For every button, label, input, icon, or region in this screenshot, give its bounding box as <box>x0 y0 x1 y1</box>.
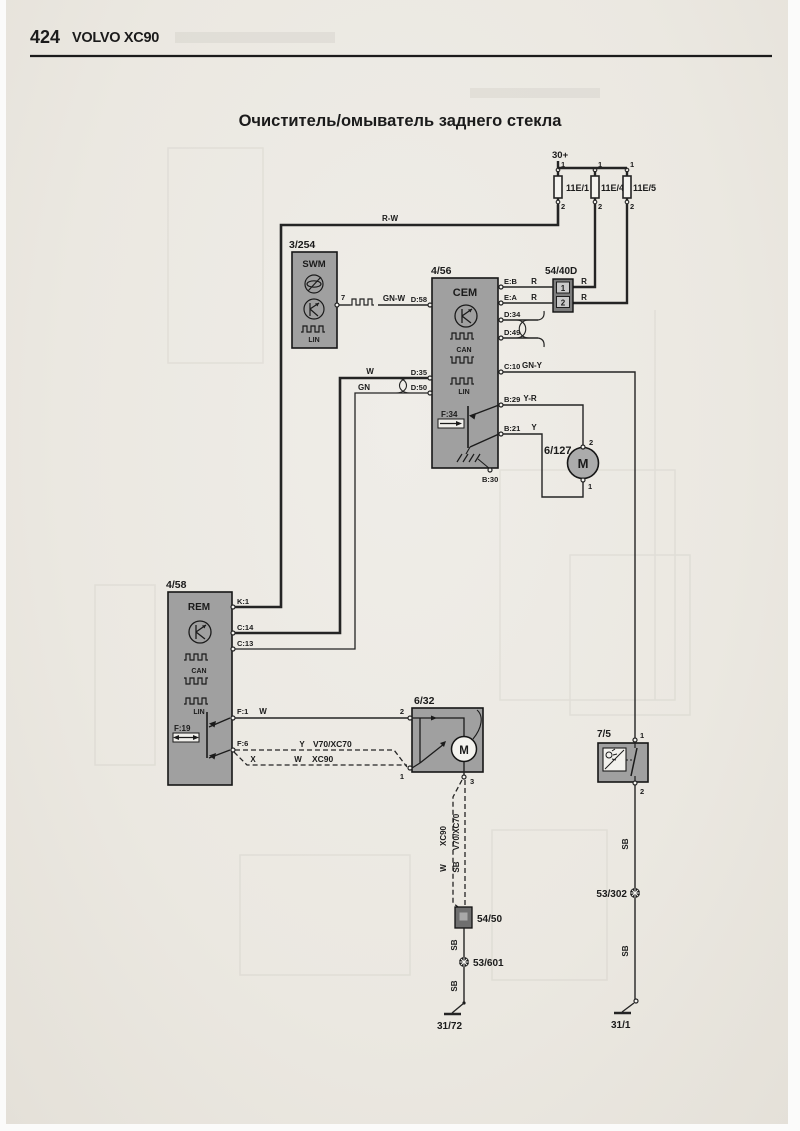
fuse-pin-label: 2 <box>630 202 634 211</box>
wire-gnw-label: GN-W <box>383 294 406 303</box>
module-rem: 4/58 REM CAN LIN F:19 <box>166 579 232 785</box>
pin-label-7: 7 <box>341 293 345 302</box>
connector-cell-label: 2 <box>561 299 566 308</box>
relay-coil-icon <box>438 419 464 428</box>
pin-label-eb: E:B <box>504 277 518 286</box>
pin-label-d50: D:50 <box>411 383 427 392</box>
page-number: 424 <box>30 27 60 47</box>
fuse-name: 11E/5 <box>633 183 656 193</box>
wire-gn-can <box>234 393 428 649</box>
ground-31-1: 31/1 <box>611 999 638 1031</box>
wire-y-label: Y <box>299 740 305 749</box>
wire-r-label: R <box>581 277 587 286</box>
wire-w-label: W <box>259 707 267 716</box>
module-cem: 4/56 CEM CAN LIN F:34 <box>431 265 499 469</box>
pin-label-f1: F:1 <box>237 707 248 716</box>
wire-y-label: Y <box>531 423 537 432</box>
ground-id: 31/1 <box>611 1020 631 1031</box>
motor-letter: M <box>578 456 589 471</box>
connector-id: 54/40D <box>545 266 577 277</box>
variant-label-v70: V70/XC70 <box>313 739 352 749</box>
fuse-name: 11E/1 <box>566 183 589 193</box>
pin-label-d35: D:35 <box>411 368 427 377</box>
connector-54-40d: 54/40D 1 2 <box>545 266 577 312</box>
module-name: CEM <box>453 287 477 299</box>
pin-label-c14: C:14 <box>237 623 254 632</box>
wire-r-fuse5 <box>573 205 627 303</box>
splice-id: 53/302 <box>596 889 627 900</box>
wire-w-label: W <box>366 367 374 376</box>
relay-label: F:19 <box>174 724 191 733</box>
variant-label-v70: V70/XC70 <box>452 813 461 850</box>
ground-31-72: 31/72 <box>437 1001 466 1032</box>
pin-label-b30: B:30 <box>482 475 498 484</box>
bleed-through-artifact <box>95 32 690 980</box>
wire-sb-label: SB <box>450 980 459 991</box>
component-id: 6/32 <box>414 695 435 707</box>
fuse-11e5: 1 2 11E/5 <box>623 160 656 211</box>
module-name: SWM <box>302 259 325 270</box>
module-name: REM <box>188 602 210 613</box>
relay-label: F:34 <box>441 410 458 419</box>
pin-label-k1: K:1 <box>237 597 249 606</box>
wire-w-label: W <box>294 755 302 764</box>
module-id: 3/254 <box>289 239 315 251</box>
model-title: VOLVO XC90 <box>72 30 159 46</box>
pin-label-d58: D:58 <box>411 295 427 304</box>
pin-label: 3 <box>470 777 474 786</box>
can-bus-label: CAN <box>456 347 471 354</box>
pin-label: 2 <box>589 438 593 447</box>
motor-letter: M <box>459 745 469 757</box>
scan-edge-right <box>788 0 800 1131</box>
pin-label-f6: F:6 <box>237 739 248 748</box>
lin-bus-label: LIN <box>193 709 204 716</box>
relay-coil-icon <box>173 733 199 742</box>
swm-pin <box>335 303 339 307</box>
fuse-symbol <box>623 176 631 198</box>
pin-label-b21: B:21 <box>504 424 520 433</box>
module-swm: 3/254 SWM LIN <box>289 239 339 348</box>
pin-label-c13: C:13 <box>237 639 253 648</box>
module-id: 4/56 <box>431 265 452 277</box>
page-header: 424 VOLVO XC90 <box>30 27 772 56</box>
pin-label: 1 <box>588 482 592 491</box>
wire-gn-label: GN <box>358 383 370 392</box>
lin-bus-label: LIN <box>458 389 469 396</box>
fuse-pin-label: 1 <box>630 160 634 169</box>
wire-w-can <box>234 378 428 633</box>
wire-r-label: R <box>531 277 537 286</box>
twisted-pair-icon <box>396 378 410 393</box>
fuse-pin-label: 1 <box>561 160 565 169</box>
wire-sb-label: SB <box>452 861 461 872</box>
wire-gny <box>503 372 635 740</box>
connector-54-50: 54/50 <box>455 907 502 928</box>
wire-gny-label: GN-Y <box>522 361 543 370</box>
pin-label-d34: D:34 <box>504 310 521 319</box>
pin-label: 2 <box>640 787 644 796</box>
wire-w-label: W <box>439 864 448 872</box>
variant-label-xc90: XC90 <box>312 754 334 764</box>
splice-53-601: 53/601 <box>459 957 504 969</box>
splice-id: 53/601 <box>473 958 504 969</box>
pin-label: 2 <box>400 707 404 716</box>
scanned-manual-page: 424 VOLVO XC90 Очиститель/омыватель задн… <box>0 0 800 1131</box>
splice-53-302: 53/302 <box>596 888 640 900</box>
wire-sb-label: SB <box>621 945 630 956</box>
pin-label-ea: E:A <box>504 293 518 302</box>
fuse-symbol <box>554 176 562 198</box>
module-id: 4/58 <box>166 579 187 591</box>
variant-label-xc90: XC90 <box>439 825 448 846</box>
scan-edge-bottom <box>0 1124 800 1131</box>
ground-id: 31/72 <box>437 1021 462 1032</box>
diagram-title: Очиститель/омыватель заднего стекла <box>239 112 563 130</box>
scan-edge-left <box>0 0 6 1131</box>
pin-label-b29: B:29 <box>504 395 520 404</box>
wire-r-label: R <box>531 293 537 302</box>
fuse-pin-label: 1 <box>598 160 602 169</box>
level-switch-7-5: 7/5 1 2 <box>597 729 648 796</box>
fuse-pin-label: 2 <box>598 202 602 211</box>
lin-bus-label: LIN <box>308 337 319 344</box>
connector-cell-label: 1 <box>561 284 566 293</box>
fuse-name: 11E/4 <box>601 183 624 193</box>
connector-id: 54/50 <box>477 914 502 925</box>
component-id: 7/5 <box>597 729 611 740</box>
wire-rw-label: R-W <box>382 214 398 223</box>
fuse-symbol <box>591 176 599 198</box>
fuse-pin-label: 2 <box>561 202 565 211</box>
wire-x-label: X <box>250 755 256 764</box>
wire-r-label: R <box>581 293 587 302</box>
pin-label: 1 <box>640 731 644 740</box>
wire-sb-label: SB <box>621 838 630 849</box>
wire-yr-label: Y-R <box>523 394 537 403</box>
pin-label: 1 <box>400 772 404 781</box>
pin-label-d49: D:49 <box>504 328 520 337</box>
wire-rw <box>234 205 558 607</box>
washer-pump-6-127: 6/127 M 2 1 <box>544 438 599 491</box>
component-id: 6/127 <box>544 445 572 457</box>
pin-label-c10: C:10 <box>504 362 520 371</box>
wire-sb-label: SB <box>450 939 459 950</box>
can-bus-label: CAN <box>191 668 206 675</box>
wiring-diagram-svg: 424 VOLVO XC90 Очиститель/омыватель задн… <box>0 0 800 1131</box>
wiper-motor-6-32: 6/32 M 2 1 3 <box>400 695 483 786</box>
